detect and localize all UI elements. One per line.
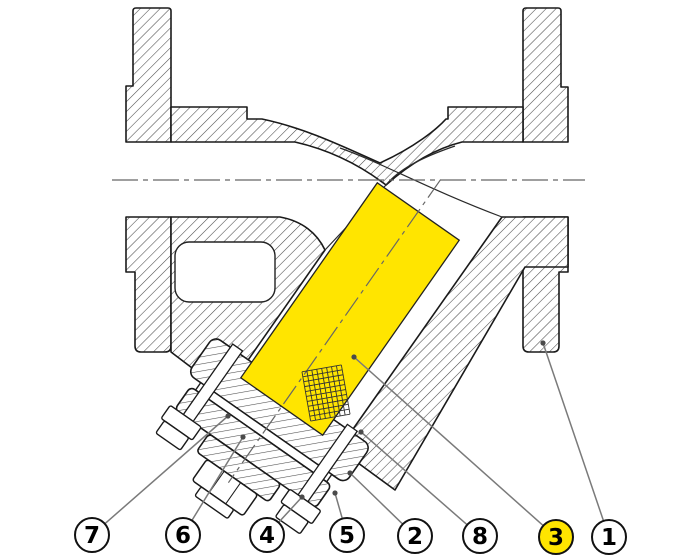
leader-dot-3	[351, 354, 356, 359]
leader-line-5	[335, 493, 342, 519]
leader-dot-8	[358, 429, 363, 434]
balloon-number-5: 5	[339, 523, 355, 549]
leader-dot-4	[299, 494, 304, 499]
right-flange-upper	[523, 8, 568, 142]
left-flange-upper	[126, 8, 171, 142]
balloon-number-1: 1	[601, 525, 617, 551]
body-top-wall	[171, 107, 523, 185]
left-flange-lower	[126, 217, 171, 352]
balloon-number-3: 3	[548, 525, 564, 551]
leader-line-1	[543, 343, 604, 521]
balloon-number-8: 8	[472, 524, 488, 550]
leader-dot-2	[347, 470, 352, 475]
balloon-number-4: 4	[259, 523, 275, 549]
drawing-canvas: 76452831	[0, 0, 700, 560]
balloon-number-2: 2	[407, 524, 423, 550]
web-pocket	[175, 242, 275, 302]
balloon-number-7: 7	[84, 523, 100, 549]
balloon-number-6: 6	[175, 523, 191, 549]
leader-dot-6	[240, 434, 245, 439]
leader-dot-1	[540, 340, 545, 345]
callout-balloon-5[interactable]: 5	[330, 490, 364, 552]
y-strainer-diagram: 76452831	[0, 0, 700, 560]
leader-dot-7	[225, 413, 230, 418]
leader-dot-5	[332, 490, 337, 495]
